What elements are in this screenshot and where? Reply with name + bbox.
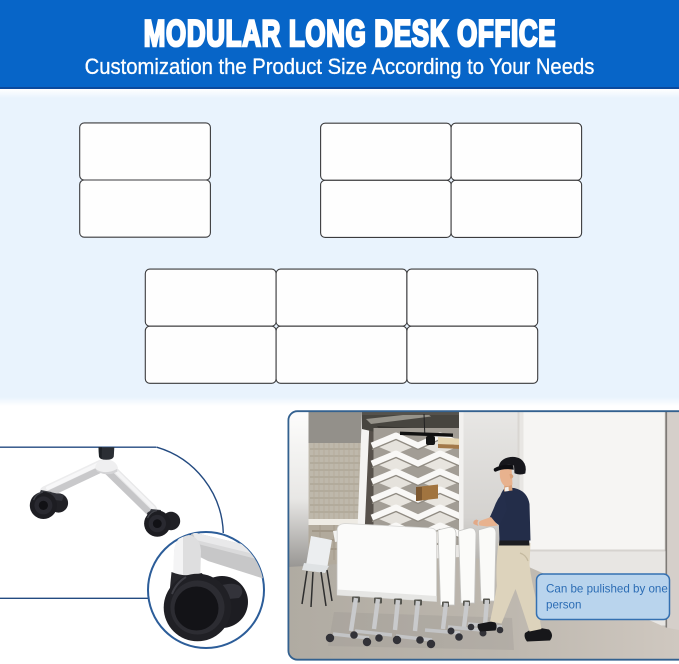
svg-text:Can be pulished by one: Can be pulished by one [546, 583, 668, 596]
svg-text:person: person [546, 599, 581, 612]
